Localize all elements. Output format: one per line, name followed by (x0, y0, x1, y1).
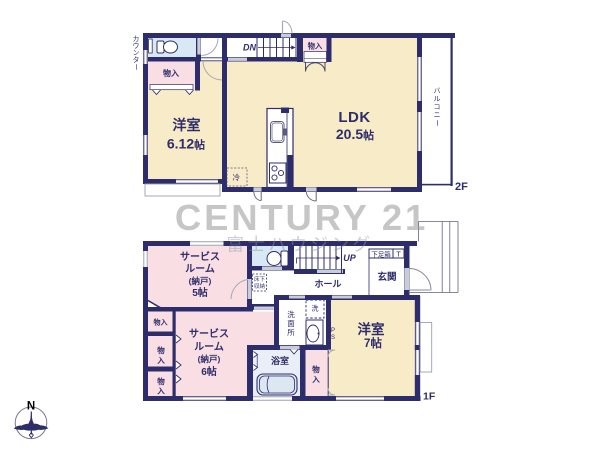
svg-text:下足箱: 下足箱 (371, 249, 391, 258)
svg-text:所: 所 (287, 327, 295, 337)
svg-text:S: S (331, 335, 335, 341)
svg-text:サービス: サービス (180, 250, 220, 263)
svg-text:2F: 2F (455, 181, 468, 193)
svg-text:6帖: 6帖 (201, 365, 217, 378)
svg-text:物: 物 (312, 364, 320, 374)
svg-text:サービス: サービス (189, 327, 229, 340)
svg-text:物入: 物入 (308, 42, 323, 51)
svg-text:ン: ン (133, 50, 140, 57)
svg-text:バ: バ (434, 87, 441, 95)
svg-text:T: T (396, 250, 401, 259)
svg-text:入: 入 (156, 356, 165, 365)
svg-text:LDK: LDK (338, 109, 370, 126)
svg-text:1F: 1F (423, 391, 436, 403)
svg-text:玄関: 玄関 (377, 271, 396, 283)
svg-text:物入: 物入 (163, 68, 179, 78)
svg-text:コ: コ (434, 103, 441, 111)
svg-text:ウ: ウ (133, 42, 140, 50)
svg-text:ニ: ニ (434, 112, 441, 119)
svg-text:ー: ー (433, 120, 440, 127)
svg-text:カ: カ (133, 35, 140, 43)
svg-text:(納戸): (納戸) (189, 276, 212, 286)
svg-text:冷: 冷 (232, 172, 240, 182)
svg-text:N: N (27, 401, 35, 413)
svg-text:ー: ー (132, 64, 139, 71)
svg-text:物入: 物入 (154, 318, 168, 327)
svg-text:入: 入 (156, 387, 165, 396)
svg-text:入: 入 (311, 375, 320, 384)
svg-text:洋室: 洋室 (358, 321, 385, 337)
svg-text:洗: 洗 (287, 309, 295, 319)
svg-text:P: P (331, 328, 335, 334)
svg-text:7帖: 7帖 (364, 336, 382, 350)
svg-text:床下: 床下 (254, 275, 266, 283)
svg-text:5帖: 5帖 (192, 286, 208, 299)
svg-text:洋室: 洋室 (173, 117, 201, 133)
svg-text:ルーム: ルーム (185, 263, 215, 275)
svg-text:物: 物 (157, 345, 165, 355)
svg-text:面: 面 (287, 319, 295, 328)
svg-text:ルーム: ルーム (194, 341, 224, 353)
svg-text:(納戸): (納戸) (198, 354, 221, 364)
svg-text:物: 物 (157, 376, 165, 386)
svg-text:浴室: 浴室 (271, 355, 289, 366)
svg-text:収納: 収納 (254, 282, 266, 290)
svg-text:ル: ル (434, 96, 441, 103)
svg-text:富士ハウジング: 富士ハウジング (227, 235, 374, 255)
svg-text:ホール: ホール (314, 279, 341, 289)
svg-text:CENTURY 21: CENTURY 21 (175, 197, 428, 238)
svg-text:UP: UP (343, 253, 356, 263)
svg-text:洗: 洗 (312, 304, 319, 313)
svg-text:DN: DN (243, 43, 256, 53)
